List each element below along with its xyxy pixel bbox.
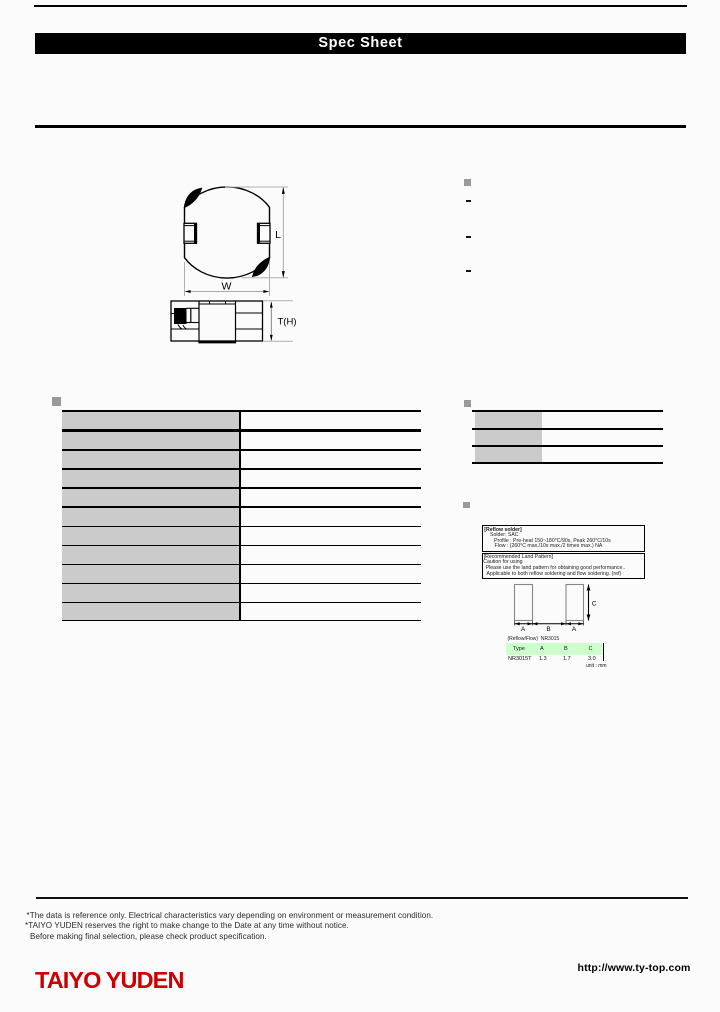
svg-text:B: B <box>546 626 550 633</box>
svg-text:L: L <box>275 229 281 241</box>
svg-text:A: A <box>521 626 526 633</box>
svg-text:W: W <box>222 281 232 293</box>
svg-text:C: C <box>592 601 597 608</box>
svg-text:A: A <box>572 626 577 633</box>
svg-text:T(H): T(H) <box>278 317 297 328</box>
